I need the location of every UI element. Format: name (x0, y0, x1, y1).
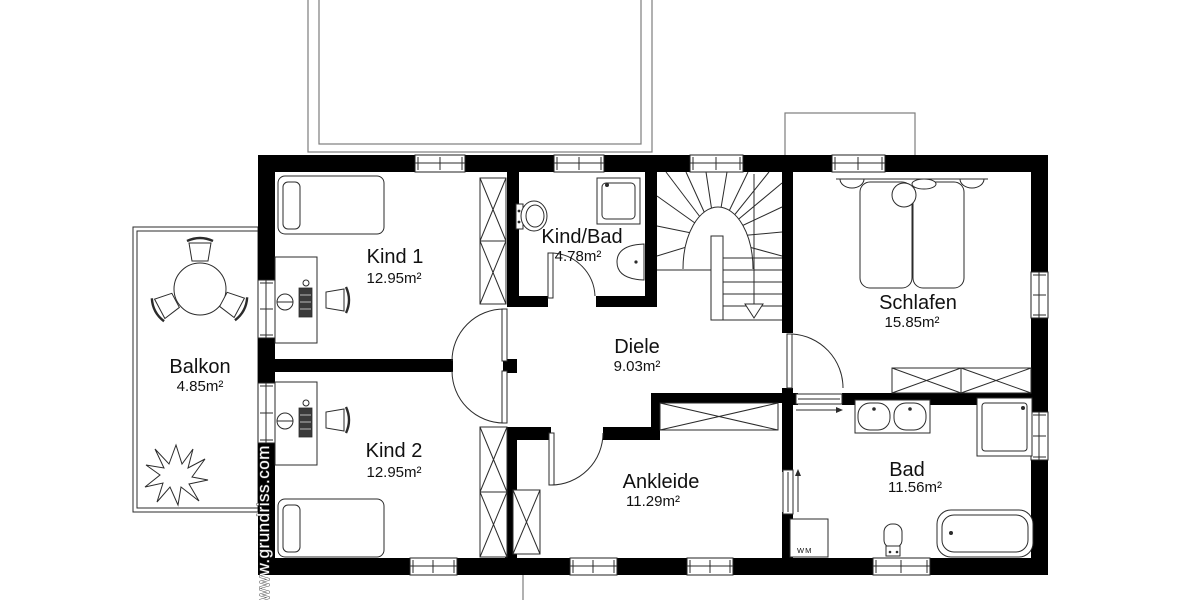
room-label-diele: Diele (614, 336, 660, 358)
room-area-diele: 9.03m² (614, 358, 661, 375)
window (410, 558, 457, 575)
door-schlafen (787, 334, 843, 388)
wall-segment (505, 427, 551, 440)
room-area-balkon: 4.85m² (177, 378, 224, 395)
room-label-ankleide: Ankleide (623, 471, 700, 493)
desk-chair (326, 287, 349, 313)
wardrobe-kind1 (480, 178, 506, 304)
window (415, 155, 465, 172)
door-kind2 (452, 371, 507, 423)
washing-machine: WM (790, 519, 828, 557)
room-area-ankleide: 11.29m² (626, 493, 680, 510)
sink (858, 403, 890, 430)
door-ankleide (549, 433, 603, 485)
room-area-kindbad: 4.78m² (555, 248, 602, 265)
sink (894, 403, 926, 430)
floor-plan-page: WM Kind 1 12.95m² Kind/Bad 4.78m² Schlaf… (0, 0, 1200, 600)
wall-segment (507, 172, 519, 307)
window (570, 558, 617, 575)
wardrobe-schlafen (892, 368, 1031, 393)
window (554, 155, 604, 172)
wall-segment (645, 172, 657, 303)
pillow (892, 183, 916, 207)
stair-newel (711, 236, 723, 320)
mouse-icon (303, 280, 309, 286)
room-label-kindbad: Kind/Bad (541, 226, 622, 248)
floor-plan: WM Kind 1 12.95m² Kind/Bad 4.78m² Schlaf… (0, 0, 1200, 600)
wall-segment (782, 405, 793, 472)
pillow (283, 505, 300, 552)
window (687, 558, 733, 575)
room-label-kind2: Kind 2 (366, 440, 423, 462)
schlafen-furniture (836, 179, 988, 288)
watermark: www.grundriss.com (254, 445, 273, 600)
mouse-icon (303, 400, 309, 406)
wardrobe-kind2 (480, 427, 507, 557)
toilet (884, 524, 902, 548)
window (832, 155, 885, 172)
wall-segment (258, 155, 1048, 172)
wardrobe-ankleide-small (513, 490, 540, 554)
washing-machine-label: WM (797, 546, 812, 555)
balcony-window (258, 383, 275, 443)
balcony-chair (187, 238, 213, 261)
sliding-door-ankleide-bad (783, 469, 801, 514)
balcony-window (258, 280, 275, 338)
wall-segment (507, 296, 548, 307)
plant (145, 445, 208, 505)
pillow (912, 179, 936, 189)
room-label-balkon: Balkon (169, 356, 230, 378)
wardrobe-ankleide-top (660, 403, 778, 430)
staircase (657, 172, 782, 320)
sink (617, 244, 644, 280)
wall-segment (1031, 155, 1048, 575)
window (1031, 412, 1048, 460)
wall-segment (603, 427, 657, 440)
wall-segment (258, 359, 453, 372)
roof-outline-top (308, 0, 652, 152)
room-area-bad: 11.56m² (888, 479, 942, 496)
window (690, 155, 743, 172)
door-kind1 (452, 309, 507, 361)
window (873, 558, 930, 575)
room-label-schlafen: Schlafen (879, 292, 957, 314)
room-label-kind1: Kind 1 (367, 246, 424, 268)
wall-segment (651, 393, 782, 403)
sliding-door-schlafen-bad (796, 394, 843, 413)
bed-mattress (913, 182, 964, 288)
dormer-outline (785, 113, 915, 157)
room-area-kind2: 12.95m² (366, 464, 421, 481)
room-area-kind1: 12.95m² (366, 270, 421, 287)
room-label-bad: Bad (889, 459, 925, 481)
stair-down-arrow (745, 304, 763, 318)
desk-chair (326, 407, 349, 433)
pillow (283, 182, 300, 229)
shower (597, 178, 640, 224)
balcony-table (174, 263, 226, 315)
room-area-schlafen: 15.85m² (884, 314, 939, 331)
wall-segment (782, 172, 793, 333)
window (1031, 272, 1048, 318)
